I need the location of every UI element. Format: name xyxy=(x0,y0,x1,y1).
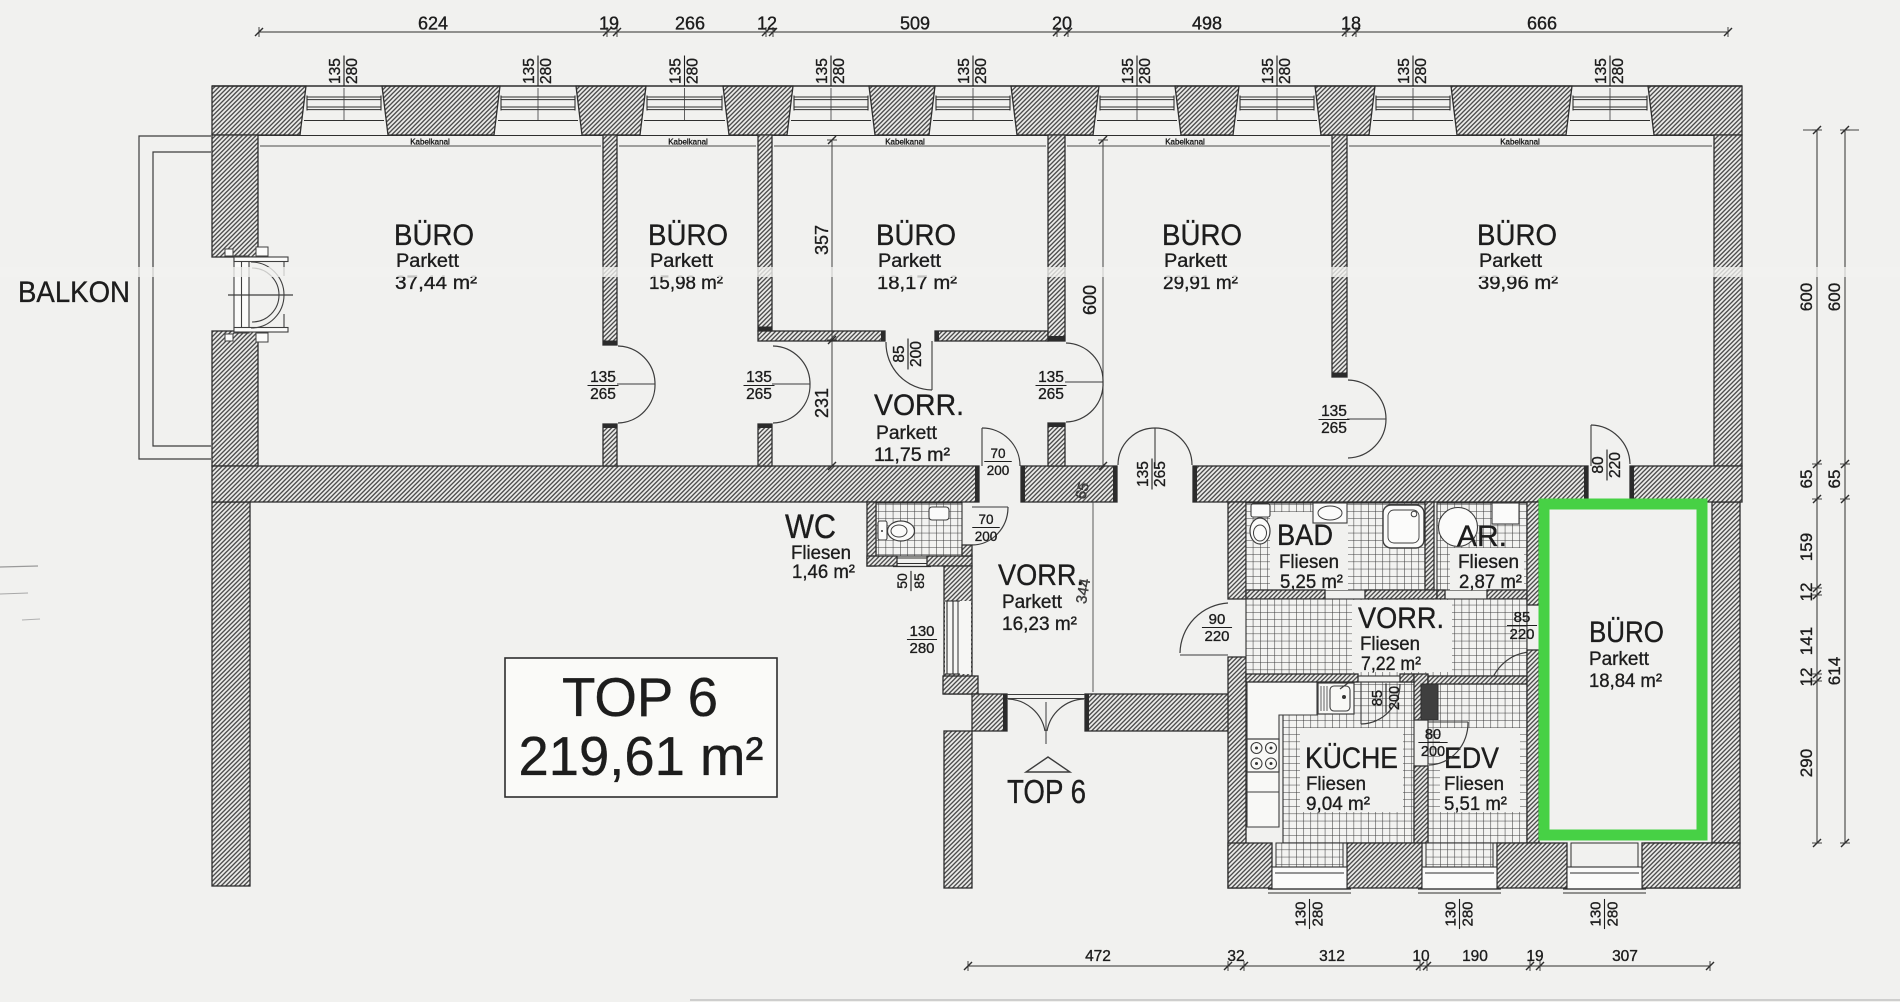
svg-text:265: 265 xyxy=(1038,386,1064,403)
svg-text:TOP 6: TOP 6 xyxy=(1007,773,1086,810)
svg-text:614: 614 xyxy=(1825,657,1844,685)
svg-text:EDV: EDV xyxy=(1444,742,1499,775)
svg-text:Kabelkanal: Kabelkanal xyxy=(1165,138,1205,147)
svg-text:307: 307 xyxy=(1612,948,1638,965)
svg-text:666: 666 xyxy=(1527,14,1557,34)
svg-text:280: 280 xyxy=(831,58,848,84)
svg-text:VORR.: VORR. xyxy=(998,559,1084,592)
svg-text:85: 85 xyxy=(1514,609,1531,626)
svg-text:200: 200 xyxy=(975,529,998,544)
svg-text:BÜRO: BÜRO xyxy=(876,219,956,252)
svg-text:600: 600 xyxy=(1080,285,1100,315)
svg-text:135: 135 xyxy=(590,369,616,386)
svg-text:16,23 m²: 16,23 m² xyxy=(1002,614,1077,635)
svg-text:280: 280 xyxy=(685,58,702,84)
svg-text:65: 65 xyxy=(1797,470,1816,489)
svg-text:BÜRO: BÜRO xyxy=(648,219,728,252)
svg-text:130: 130 xyxy=(909,623,934,640)
svg-text:135: 135 xyxy=(1038,369,1064,386)
svg-text:19: 19 xyxy=(1526,948,1543,965)
svg-text:135: 135 xyxy=(746,369,772,386)
svg-text:80: 80 xyxy=(1590,456,1607,474)
svg-text:200: 200 xyxy=(908,341,925,367)
svg-text:280: 280 xyxy=(538,58,555,84)
svg-text:1,46 m²: 1,46 m² xyxy=(792,562,855,583)
svg-text:Fliesen: Fliesen xyxy=(1279,552,1339,573)
svg-text:280: 280 xyxy=(1605,901,1622,926)
svg-text:265: 265 xyxy=(1152,461,1169,487)
svg-text:Fliesen: Fliesen xyxy=(791,543,851,564)
svg-text:290: 290 xyxy=(1797,749,1816,777)
svg-text:280: 280 xyxy=(1310,901,1327,926)
svg-text:90: 90 xyxy=(1209,611,1226,628)
svg-text:Kabelkanal: Kabelkanal xyxy=(668,138,708,147)
svg-text:472: 472 xyxy=(1085,948,1111,965)
svg-text:600: 600 xyxy=(1825,283,1844,311)
svg-text:VORR.: VORR. xyxy=(874,389,964,422)
svg-text:220: 220 xyxy=(1509,626,1534,643)
svg-text:WC: WC xyxy=(785,508,836,546)
svg-text:BAD: BAD xyxy=(1277,519,1333,552)
svg-text:280: 280 xyxy=(973,58,990,84)
svg-text:266: 266 xyxy=(675,14,705,34)
svg-text:280: 280 xyxy=(344,58,361,84)
svg-text:65: 65 xyxy=(1825,470,1844,489)
svg-text:135: 135 xyxy=(1321,403,1347,420)
svg-text:32: 32 xyxy=(1227,948,1244,965)
svg-text:600: 600 xyxy=(1797,283,1816,311)
svg-text:85: 85 xyxy=(1370,690,1386,706)
svg-text:Parkett: Parkett xyxy=(876,423,938,444)
svg-text:9,04 m²: 9,04 m² xyxy=(1306,794,1370,815)
svg-text:220: 220 xyxy=(1607,452,1624,478)
svg-text:135: 135 xyxy=(814,58,831,84)
svg-text:280: 280 xyxy=(1610,58,1627,84)
svg-text:509: 509 xyxy=(900,14,930,34)
svg-text:219,61 m²: 219,61 m² xyxy=(519,725,764,787)
svg-text:VORR.: VORR. xyxy=(1358,602,1444,635)
svg-text:50: 50 xyxy=(894,573,910,589)
svg-text:130: 130 xyxy=(1293,901,1310,926)
svg-text:357: 357 xyxy=(812,225,832,255)
svg-text:200: 200 xyxy=(1421,744,1445,760)
svg-text:Kabelkanal: Kabelkanal xyxy=(1500,138,1540,147)
svg-text:70: 70 xyxy=(990,446,1005,461)
svg-text:280: 280 xyxy=(1413,58,1430,84)
svg-text:135: 135 xyxy=(327,58,344,84)
svg-text:159: 159 xyxy=(1797,533,1816,561)
svg-text:135: 135 xyxy=(1135,461,1152,487)
svg-text:265: 265 xyxy=(1321,420,1347,437)
svg-text:Parkett: Parkett xyxy=(1002,592,1063,613)
svg-text:70: 70 xyxy=(978,512,993,527)
svg-text:85: 85 xyxy=(891,345,908,362)
svg-text:AR.: AR. xyxy=(1457,520,1507,553)
svg-text:Fliesen: Fliesen xyxy=(1360,634,1420,655)
svg-text:Fliesen: Fliesen xyxy=(1458,552,1519,573)
svg-text:KÜCHE: KÜCHE xyxy=(1305,742,1398,775)
svg-text:190: 190 xyxy=(1462,948,1488,965)
svg-text:80: 80 xyxy=(1425,727,1441,743)
svg-text:231: 231 xyxy=(812,388,832,418)
svg-text:135: 135 xyxy=(1593,58,1610,84)
svg-text:Kabelkanal: Kabelkanal xyxy=(410,138,450,147)
svg-text:TOP 6: TOP 6 xyxy=(562,666,718,728)
svg-text:7,22 m²: 7,22 m² xyxy=(1361,654,1421,675)
svg-text:135: 135 xyxy=(521,58,538,84)
svg-text:624: 624 xyxy=(418,14,448,34)
svg-text:265: 265 xyxy=(590,386,616,403)
svg-text:19: 19 xyxy=(599,14,619,34)
svg-text:130: 130 xyxy=(1443,901,1460,926)
svg-text:12: 12 xyxy=(1797,668,1816,687)
svg-text:280: 280 xyxy=(1277,58,1294,84)
svg-text:18,84 m²: 18,84 m² xyxy=(1589,671,1662,692)
svg-text:BÜRO: BÜRO xyxy=(1477,219,1557,252)
svg-text:12: 12 xyxy=(1797,583,1816,602)
svg-text:280: 280 xyxy=(909,640,934,657)
svg-text:Parkett: Parkett xyxy=(1589,649,1650,670)
svg-text:BALKON: BALKON xyxy=(18,276,130,309)
svg-text:85: 85 xyxy=(911,573,927,589)
svg-text:BÜRO: BÜRO xyxy=(1589,616,1664,649)
svg-text:Kabelkanal: Kabelkanal xyxy=(885,138,925,147)
svg-text:498: 498 xyxy=(1192,14,1222,34)
svg-text:220: 220 xyxy=(1204,628,1229,645)
svg-text:135: 135 xyxy=(1260,58,1277,84)
svg-text:135: 135 xyxy=(1396,58,1413,84)
svg-text:130: 130 xyxy=(1588,901,1605,926)
svg-text:11,75 m²: 11,75 m² xyxy=(874,445,950,466)
svg-text:135: 135 xyxy=(1120,58,1137,84)
svg-text:200: 200 xyxy=(987,463,1010,478)
svg-text:10: 10 xyxy=(1412,948,1430,965)
svg-text:141: 141 xyxy=(1797,627,1816,655)
svg-text:280: 280 xyxy=(1137,58,1154,84)
svg-text:Fliesen: Fliesen xyxy=(1306,774,1366,795)
svg-text:BÜRO: BÜRO xyxy=(394,219,474,252)
svg-text:12: 12 xyxy=(757,14,777,34)
svg-text:280: 280 xyxy=(1460,901,1477,926)
svg-text:20: 20 xyxy=(1052,14,1072,34)
svg-text:BÜRO: BÜRO xyxy=(1162,219,1242,252)
svg-text:265: 265 xyxy=(746,386,772,403)
svg-text:Fliesen: Fliesen xyxy=(1444,774,1504,795)
svg-text:135: 135 xyxy=(668,58,685,84)
svg-text:18: 18 xyxy=(1341,14,1361,34)
svg-text:200: 200 xyxy=(1387,686,1403,710)
svg-text:135: 135 xyxy=(956,58,973,84)
svg-text:5,51 m²: 5,51 m² xyxy=(1444,794,1507,815)
svg-text:312: 312 xyxy=(1319,948,1345,965)
